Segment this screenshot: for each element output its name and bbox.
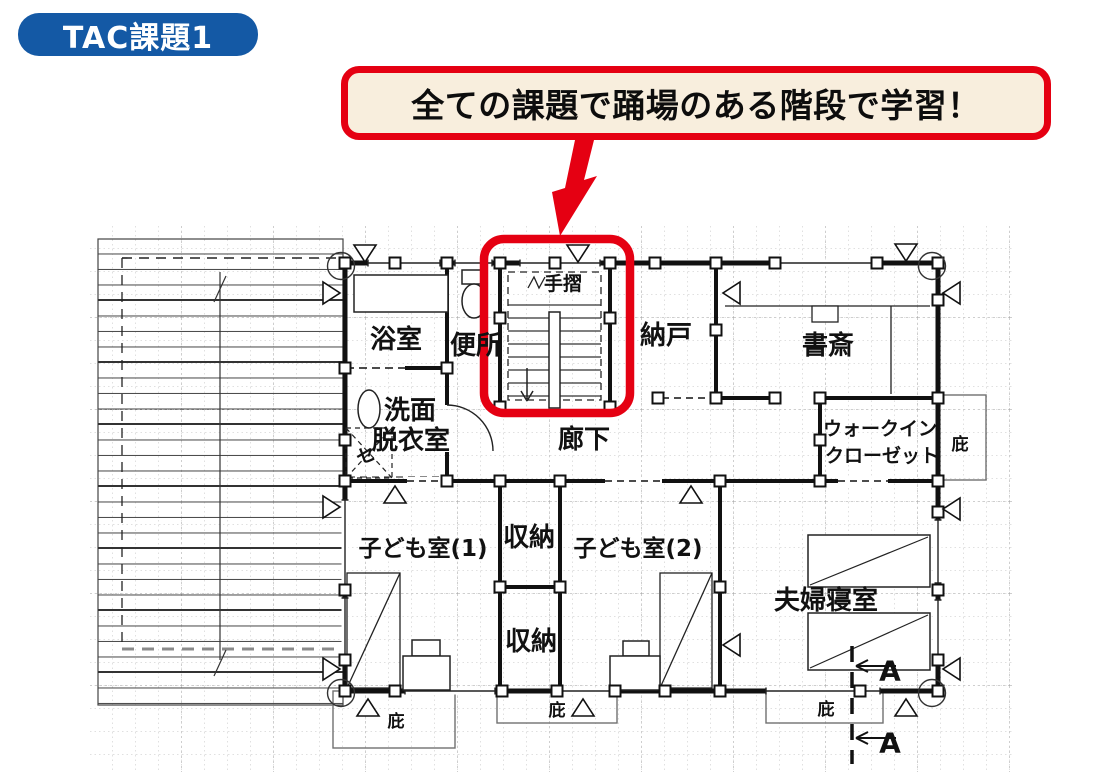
roof-area	[98, 239, 343, 705]
room-label-wic-line2: クローゼット	[825, 444, 939, 467]
room-label-wic-line1: ウォークイン	[823, 418, 937, 440]
bed-master-1	[808, 535, 930, 587]
room-label-master-bedroom: 夫婦寝室	[774, 585, 878, 616]
room-label-study: 書斎	[802, 330, 854, 361]
room-label-kids2: 子ども室(2)	[573, 535, 702, 562]
page: A A 浴室 便所 手摺 納戸 書斎 洗面 脱衣室 セ 廊下 ウォークイン クロ…	[0, 0, 1105, 781]
section-mark-a-bottom: A	[879, 727, 901, 760]
room-label-washroom-line2: 脱衣室	[372, 425, 450, 456]
room-label-corridor: 廊下	[558, 424, 610, 455]
bed-master-2	[808, 613, 930, 670]
window	[342, 500, 349, 585]
label-eave-right: 庇	[952, 434, 969, 455]
bathtub-icon	[354, 275, 448, 312]
title-badge-label: TAC課題1	[63, 13, 213, 57]
room-label-handrail: 手摺	[544, 272, 582, 295]
sink-icon	[358, 390, 380, 428]
room-label-storeroom: 納戸	[640, 320, 692, 351]
label-eave-bottom-center: 庇	[549, 700, 566, 721]
window	[935, 600, 942, 656]
room-label-closet-lower: 収納	[505, 626, 557, 657]
room-label-washroom-line1: 洗面	[384, 396, 436, 426]
callout-arrow-icon	[552, 140, 597, 236]
room-label-bath: 浴室	[370, 324, 422, 355]
window	[562, 688, 612, 695]
window	[775, 260, 877, 267]
window	[368, 260, 440, 267]
label-eave-bottom-left: 庇	[388, 711, 405, 732]
section-mark-a-top: A	[879, 655, 901, 688]
callout-text: 全ての課題で踊場のある階段で学習！	[411, 79, 981, 127]
room-label-closet-upper: 収納	[503, 522, 555, 553]
room-label-kids1: 子ども室(1)	[358, 535, 487, 562]
window	[935, 520, 942, 583]
label-eave-bottom-right: 庇	[818, 699, 835, 720]
title-badge: TAC課題1	[18, 13, 258, 56]
room-label-toilet: 便所	[450, 331, 502, 361]
callout: 全ての課題で踊場のある階段で学習！	[341, 66, 1051, 140]
